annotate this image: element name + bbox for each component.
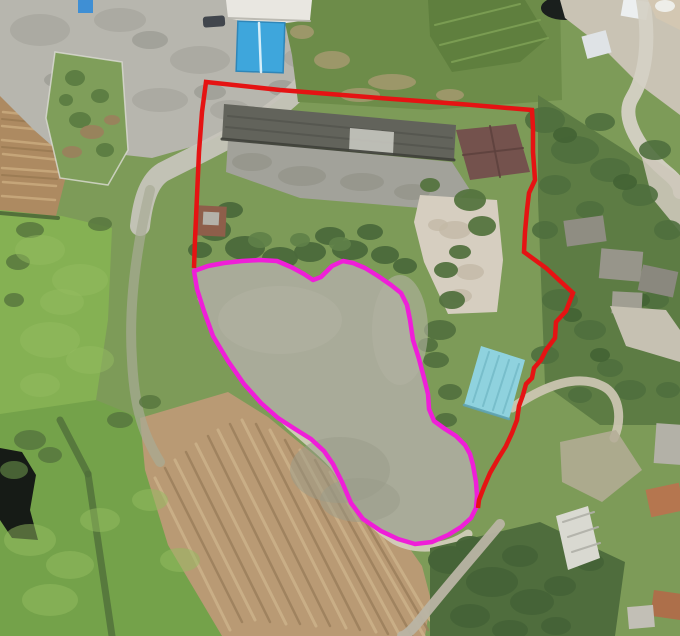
concrete-mottle-light bbox=[10, 14, 70, 46]
trees-east-of-pond bbox=[424, 320, 456, 340]
tree-band-center-light bbox=[248, 232, 272, 248]
tree-blobs-right bbox=[656, 382, 680, 398]
tree-blobs-right-dark bbox=[553, 127, 577, 143]
grass-mottle-left bbox=[66, 346, 114, 374]
trees-east-of-pond bbox=[438, 384, 462, 400]
tree-blobs-right bbox=[568, 387, 592, 403]
trees-bottom-blobs bbox=[541, 617, 571, 635]
trees-bottom-blobs bbox=[544, 576, 576, 596]
hedge-blobs-left bbox=[139, 395, 161, 409]
pond-water-highlight bbox=[218, 286, 342, 354]
sandy-mottle bbox=[456, 264, 484, 280]
hedge-blobs-left bbox=[107, 412, 133, 428]
gray-roof-building bbox=[627, 605, 655, 629]
garden-bushes bbox=[59, 94, 73, 106]
concrete-mottle-dark bbox=[194, 84, 226, 100]
trees-east-of-pond bbox=[449, 245, 471, 259]
tree-blobs-right bbox=[532, 221, 558, 239]
grass-mottle-left bbox=[20, 373, 60, 397]
scrub-dirt-patches bbox=[290, 25, 314, 39]
scrub-dirt-patches bbox=[368, 74, 416, 90]
terracotta-roof-building-2 bbox=[650, 590, 680, 620]
grass-mottle-left bbox=[132, 489, 168, 511]
bushes-on-pad bbox=[454, 189, 486, 211]
grass-mottle-left bbox=[46, 551, 94, 579]
tree-blobs-right bbox=[639, 140, 671, 160]
scrub-dirt-patches bbox=[436, 89, 464, 101]
concrete-mottle-light bbox=[132, 88, 188, 112]
hedge-blobs-left bbox=[4, 293, 24, 307]
grass-mottle-left bbox=[40, 289, 84, 315]
tan-building-roof-highlight bbox=[655, 0, 675, 12]
grass-mottle-left bbox=[80, 508, 120, 532]
grass-mottle-left bbox=[15, 235, 65, 265]
tree-band-center bbox=[188, 242, 212, 258]
pad-mottle bbox=[278, 166, 326, 186]
tree-blobs-right bbox=[585, 113, 615, 131]
aerial-scene bbox=[0, 0, 680, 636]
garden-soil-beds bbox=[62, 146, 82, 158]
trees-bottom-blobs bbox=[502, 545, 538, 567]
tree-band-center-light bbox=[329, 237, 351, 251]
concrete-mottle-dark bbox=[132, 31, 168, 49]
garden-bushes bbox=[91, 89, 109, 103]
trees-east-of-pond bbox=[434, 262, 458, 278]
stone-roof-building-2 bbox=[599, 248, 643, 282]
hedge-blobs-left bbox=[14, 430, 46, 450]
scrub-dirt-patches bbox=[314, 51, 350, 69]
garden-soil-beds bbox=[80, 125, 104, 139]
grass-mottle-left bbox=[22, 584, 78, 616]
gray-roof-building-2 bbox=[654, 423, 680, 465]
trees-bottom-blobs bbox=[450, 604, 490, 628]
hedge-blobs-left bbox=[38, 447, 62, 463]
trees-east-of-pond bbox=[439, 291, 465, 309]
tree-band-center bbox=[393, 258, 417, 274]
tree-blobs-right-dark bbox=[590, 348, 610, 362]
concrete-mottle-light bbox=[170, 46, 230, 74]
bushes-on-pad bbox=[420, 178, 440, 192]
trees-east-of-pond bbox=[423, 352, 449, 368]
aerial-map-screenshot bbox=[0, 0, 680, 636]
concrete-mottle-light bbox=[94, 8, 146, 32]
tree-band-center bbox=[357, 224, 383, 240]
hedge-blobs-left bbox=[0, 461, 28, 479]
garden-bushes bbox=[96, 143, 114, 157]
sandy-mottle bbox=[428, 219, 448, 231]
trees-bottom-blobs bbox=[466, 567, 518, 597]
tree-blobs-right-dark bbox=[613, 174, 637, 190]
garden-soil-beds bbox=[104, 115, 120, 125]
tree-blobs-right bbox=[574, 320, 606, 340]
tree-band-center-light bbox=[290, 233, 310, 247]
parked-car bbox=[203, 15, 226, 28]
pad-mottle bbox=[340, 173, 384, 191]
brick-shed-roof-patch bbox=[203, 212, 220, 226]
hedge-blobs-left bbox=[88, 217, 112, 231]
small-blue-roof bbox=[78, 0, 93, 13]
trees-bottom-blobs bbox=[510, 589, 554, 615]
tree-blobs-right bbox=[539, 175, 571, 195]
bushes-on-pad bbox=[468, 216, 496, 236]
pad-mottle bbox=[232, 153, 272, 171]
grass-mottle-left bbox=[160, 548, 200, 572]
stone-roof-building bbox=[563, 215, 606, 246]
tree-band-center bbox=[371, 246, 399, 264]
grass-mottle-left bbox=[4, 524, 56, 556]
garden-bushes bbox=[65, 70, 85, 86]
